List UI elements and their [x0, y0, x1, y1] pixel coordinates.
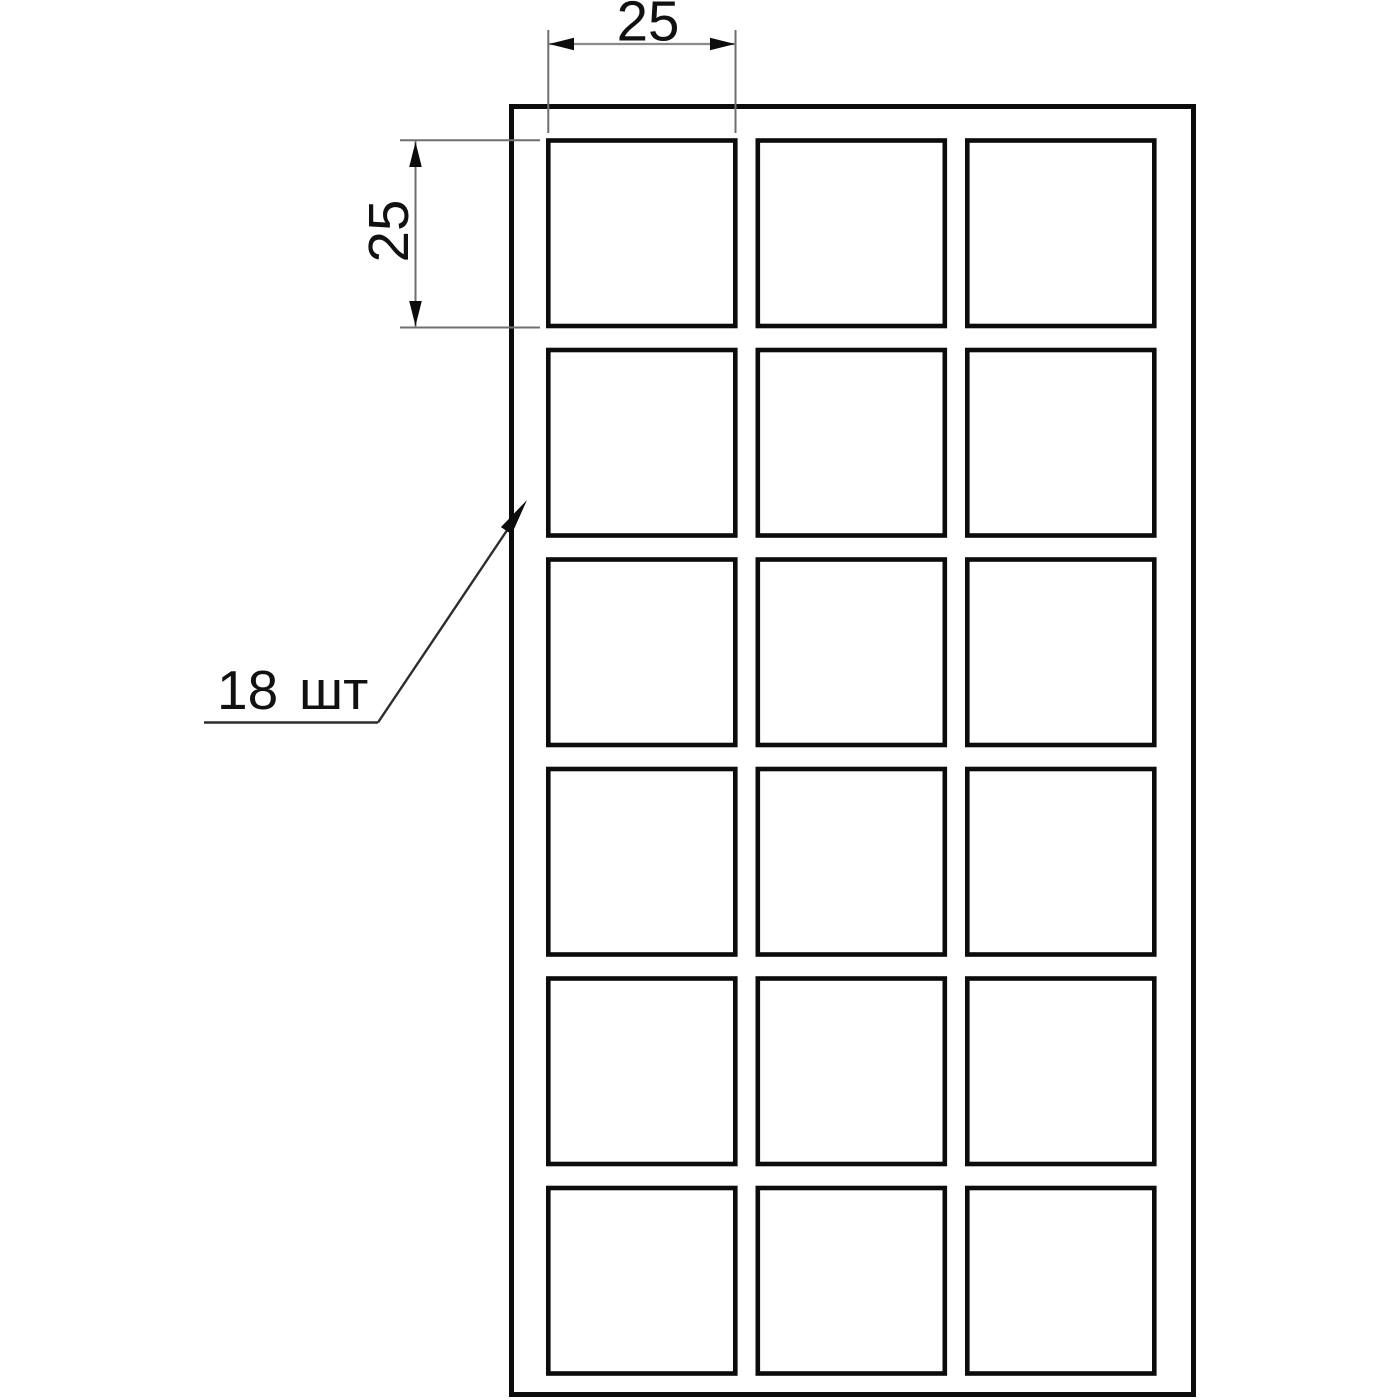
svg-text:25: 25 — [357, 200, 420, 263]
svg-text:25: 25 — [617, 0, 680, 53]
